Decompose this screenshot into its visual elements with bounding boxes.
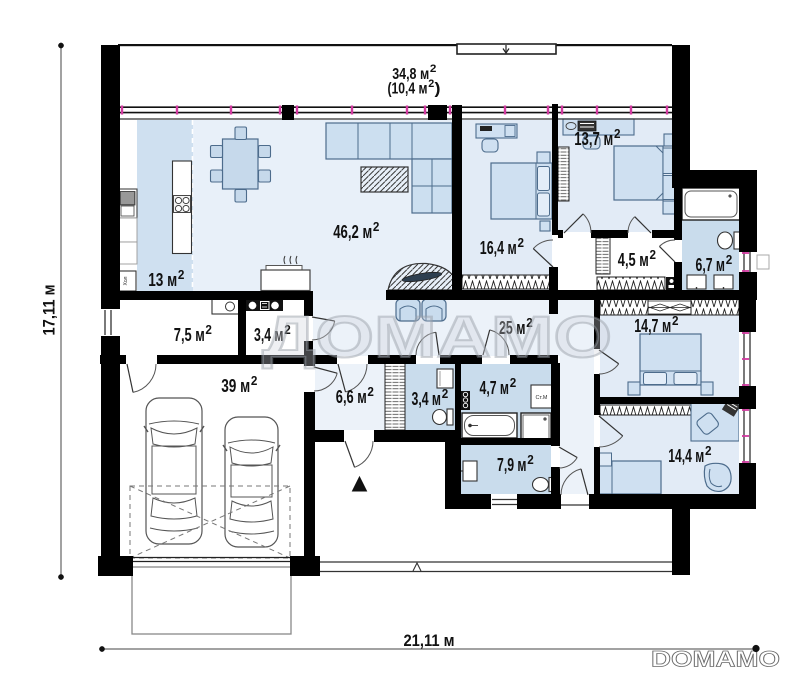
svg-text:2: 2 — [367, 385, 374, 399]
svg-text:13,7 м: 13,7 м — [574, 129, 613, 149]
svg-text:2: 2 — [705, 444, 712, 458]
svg-text:2: 2 — [428, 78, 434, 90]
svg-text:Ст.М: Ст.М — [536, 395, 548, 401]
svg-text:2: 2 — [672, 314, 679, 328]
svg-text:21,11 м: 21,11 м — [404, 631, 455, 650]
svg-text:16,4 м: 16,4 м — [480, 238, 517, 258]
svg-text:2: 2 — [178, 268, 185, 282]
svg-text:2: 2 — [430, 63, 437, 75]
svg-text:4,5 м: 4,5 м — [618, 250, 649, 270]
svg-text:17,11 м: 17,11 м — [40, 285, 59, 336]
svg-text:7,9 м: 7,9 м — [497, 455, 527, 475]
svg-text:(10,4 м: (10,4 м — [388, 81, 428, 98]
svg-text:14,4 м: 14,4 м — [668, 446, 704, 466]
svg-text:3,4 м: 3,4 м — [412, 389, 442, 409]
svg-text:2: 2 — [205, 323, 212, 337]
svg-text:2: 2 — [527, 453, 534, 467]
svg-text:6,7 м: 6,7 м — [696, 255, 726, 275]
svg-text:4,7 м: 4,7 м — [480, 378, 510, 398]
svg-text:2: 2 — [726, 253, 733, 267]
svg-text:2: 2 — [510, 376, 517, 390]
svg-text:2: 2 — [373, 220, 380, 234]
svg-text:Хол: Хол — [123, 276, 129, 285]
svg-text:DOMAMO: DOMAMO — [651, 647, 780, 672]
svg-text:): ) — [435, 81, 441, 98]
svg-text:2: 2 — [251, 374, 258, 388]
svg-text:14,7 м: 14,7 м — [634, 316, 671, 336]
svg-text:13 м: 13 м — [148, 270, 177, 290]
svg-text:2: 2 — [650, 248, 657, 262]
svg-text:39 м: 39 м — [221, 376, 250, 396]
svg-text:2: 2 — [442, 387, 449, 401]
svg-text:6,6 м: 6,6 м — [336, 387, 367, 407]
svg-text:46,2 м: 46,2 м — [333, 222, 372, 242]
svg-text:2: 2 — [614, 127, 621, 141]
svg-text:2: 2 — [518, 236, 525, 250]
svg-text:7,5 м: 7,5 м — [174, 325, 205, 345]
svg-text:ДОМАМО: ДОМАМО — [262, 305, 612, 370]
